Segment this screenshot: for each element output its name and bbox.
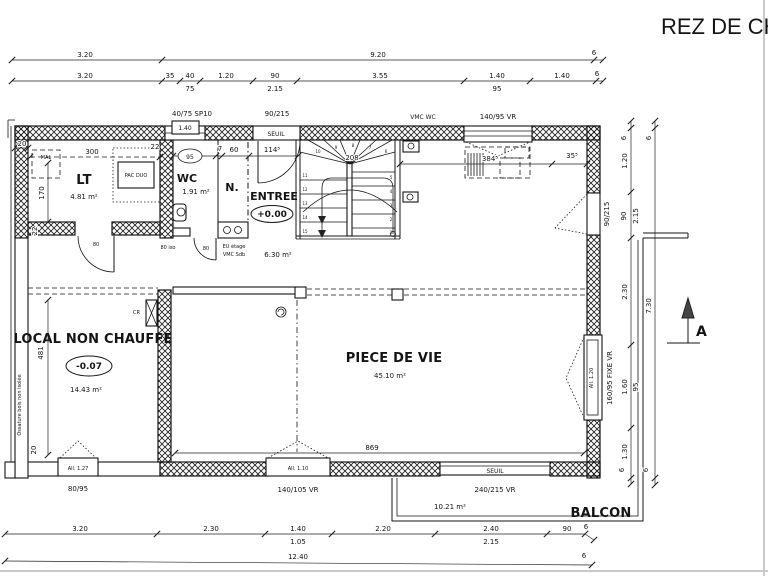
door-wc-label: 80 xyxy=(203,246,209,252)
dim: 40 xyxy=(186,72,195,80)
stair-going-label: 208 xyxy=(345,154,358,162)
step-number: 12 xyxy=(302,187,308,192)
dim: 90 xyxy=(563,525,572,533)
dim: 170 xyxy=(38,186,46,199)
step-number: 4 xyxy=(390,189,393,194)
interior-doors: 80 80 iso 80 xyxy=(78,236,216,272)
dim: 1.20 xyxy=(218,72,234,80)
room-balcon-area: 10.21 m² xyxy=(434,503,466,511)
bay-window-240-215: SEUIL 240/215 VR xyxy=(440,462,550,494)
dim: 481 xyxy=(37,346,45,359)
dim: 95 xyxy=(186,154,194,161)
step-number: 15 xyxy=(302,229,308,234)
step-number: 7 xyxy=(369,145,372,150)
room-entree-area: 6.30 m² xyxy=(264,251,292,259)
dim: 95 xyxy=(632,383,640,392)
dim: 12.40 xyxy=(288,553,308,561)
dim: 3.20 xyxy=(77,72,93,80)
window-right-160-95: All. 1.20 160/95 FIXE VR xyxy=(566,335,614,420)
dim: 6 xyxy=(618,467,626,472)
door-iso-label: 80 iso xyxy=(160,245,175,251)
dim: 2.15 xyxy=(483,538,499,546)
washing-machine-label: MAL xyxy=(41,155,52,161)
dim: 60 xyxy=(230,146,239,154)
dim: 90 xyxy=(271,72,280,80)
step-number: 6 xyxy=(385,149,388,154)
scan-edge-right xyxy=(763,0,765,576)
dims-bottom: 3.20 2.30 1.40 1.05 2.20 2.40 2.15 90 6 … xyxy=(5,523,594,565)
dim: 300 xyxy=(85,148,98,156)
room-piece-name: PIECE DE VIE xyxy=(346,351,443,366)
dim: 6 xyxy=(645,135,653,140)
bay-seuil-label: SEUIL xyxy=(486,468,504,475)
dim: 2.15 xyxy=(632,208,640,224)
dim: 2.40 xyxy=(483,525,499,533)
scan-edge-bottom xyxy=(0,570,768,572)
dim: 6 xyxy=(584,523,589,531)
dim: 869 xyxy=(365,444,378,452)
dim: 1.40 xyxy=(554,72,570,80)
dim: 2.20 xyxy=(375,525,391,533)
dim: 7.30 xyxy=(645,298,653,314)
room-local-area: 14.43 m² xyxy=(70,386,102,394)
floorplan-sheet: 1.40 40/75 SP10 SEUIL 90/215 140/95 VR V… xyxy=(0,0,768,576)
dim: 22 xyxy=(151,143,160,151)
dim: 3.55 xyxy=(372,72,388,80)
room-local-name: LOCAL NON CHAUFFE xyxy=(13,332,172,347)
dim: 9.20 xyxy=(370,51,386,59)
step-number: 8 xyxy=(352,143,355,148)
dim: 20 xyxy=(18,140,27,148)
pac-duo-label: PAC DUO xyxy=(125,173,148,179)
dim: 35⁵ xyxy=(566,152,578,160)
vmc-sdb-label: VMC Sdb xyxy=(223,252,245,258)
step-number: 5 xyxy=(390,175,393,180)
cr-label: CR xyxy=(133,310,140,316)
section-marker: A xyxy=(667,298,707,343)
entree-level: +0.00 xyxy=(257,210,287,220)
bottom-window-label: 140/105 VR xyxy=(278,486,319,494)
ossature-note: Ossature bois non isolée xyxy=(16,374,23,435)
balcony xyxy=(392,233,688,521)
room-lt-area: 4.81 m² xyxy=(70,193,98,201)
sp10-allege-label: 1.40 xyxy=(178,125,192,132)
dim: 1.20 xyxy=(621,153,629,169)
right-window-allege-label: All. 1.20 xyxy=(589,368,595,389)
dim: 1.60 xyxy=(621,379,629,395)
room-wc-name: WC xyxy=(177,172,197,185)
dim: 95 xyxy=(493,85,502,93)
right-door-label: 90/215 xyxy=(603,202,611,227)
door-lt-label: 80 xyxy=(93,242,99,248)
dim: 6 xyxy=(582,552,587,560)
step-number: 11 xyxy=(302,173,308,178)
dim: 114⁵ xyxy=(264,146,280,154)
dim: 22 xyxy=(31,227,39,236)
dim: 3.20 xyxy=(77,51,93,59)
top-door-label: 90/215 xyxy=(265,110,290,118)
dim: 6 xyxy=(620,135,628,140)
bay-label: 240/215 VR xyxy=(475,486,516,494)
dim: 20 xyxy=(30,446,38,455)
dim: 3.20 xyxy=(72,525,88,533)
step-number: 14 xyxy=(302,215,308,220)
dim: 7 xyxy=(218,145,222,153)
stair-direction-arrow xyxy=(318,230,326,238)
dim: 1.40 xyxy=(290,525,306,533)
step-number: 1 xyxy=(390,230,393,235)
room-n-name: N. xyxy=(225,181,238,194)
dims-right: 6 1.20 90 2.15 2.30 1.60 95 1.30 6 6 7.3… xyxy=(618,121,655,485)
vmc-wc-label: VMC WC xyxy=(410,114,436,121)
section-arrow-icon xyxy=(682,298,694,318)
top-window-label: 140/95 VR xyxy=(480,113,517,121)
dim: 2.30 xyxy=(203,525,219,533)
step-number: 13 xyxy=(302,201,308,206)
window-bottom-140-105: All. 1.10 140/105 VR xyxy=(266,441,330,494)
dim: 6 xyxy=(595,70,600,78)
dim: 6 xyxy=(592,49,597,57)
local-level: -0.07 xyxy=(76,362,102,372)
door-right-90-215: 90/215 xyxy=(555,193,611,235)
step-number: 10 xyxy=(315,149,321,154)
room-wc-area: 1.91 m² xyxy=(182,188,210,196)
room-balcon-name: BALCON xyxy=(571,506,632,521)
dim: 1.30 xyxy=(621,444,629,460)
dim: 1.05 xyxy=(290,538,306,546)
dim: 2.15 xyxy=(267,85,283,93)
dims-top: 3.20 9.20 6 3.20 35 40 75 1.20 90 2.15 3… xyxy=(12,49,603,93)
floorplan-drawing: 1.40 40/75 SP10 SEUIL 90/215 140/95 VR V… xyxy=(0,0,768,576)
window-local-80-95: All. 1.27 80/95 xyxy=(58,441,98,493)
room-lt-name: LT xyxy=(76,173,91,188)
section-letter: A xyxy=(696,324,707,340)
dim: 1.40 xyxy=(489,72,505,80)
sp10-label: 40/75 SP10 xyxy=(172,110,212,118)
dim: 90 xyxy=(620,212,628,221)
staircase: 208 1 2 3 4 5 6 7 8 9 10 11 12 13 14 15 xyxy=(300,140,397,238)
stair-direction-arrow xyxy=(318,216,326,224)
step-number: 2 xyxy=(390,217,393,222)
dim: 75 xyxy=(186,85,195,93)
local-window-allege-label: All. 1.27 xyxy=(68,466,89,472)
local-window-label: 80/95 xyxy=(68,485,88,493)
eu-etage-label: EU étage xyxy=(223,243,246,250)
bottom-window-allege-label: All. 1.10 xyxy=(288,466,309,472)
dim: 384⁵ xyxy=(482,155,498,163)
interior-walls xyxy=(28,140,400,462)
step-number: 9 xyxy=(335,145,338,150)
right-window-label: 160/95 FIXE VR xyxy=(606,351,614,405)
dim: 2.30 xyxy=(621,284,629,300)
top-seuil-label: SEUIL xyxy=(267,131,285,138)
page-title: REZ DE CH xyxy=(661,14,768,44)
window-sp10: 1.40 40/75 SP10 xyxy=(165,110,212,140)
dim: 35 xyxy=(166,72,175,80)
step-number: 3 xyxy=(390,203,393,208)
dim: 6 xyxy=(642,467,650,472)
room-entree-name: ENTREE xyxy=(250,190,298,203)
room-piece-area: 45.10 m² xyxy=(374,372,406,380)
